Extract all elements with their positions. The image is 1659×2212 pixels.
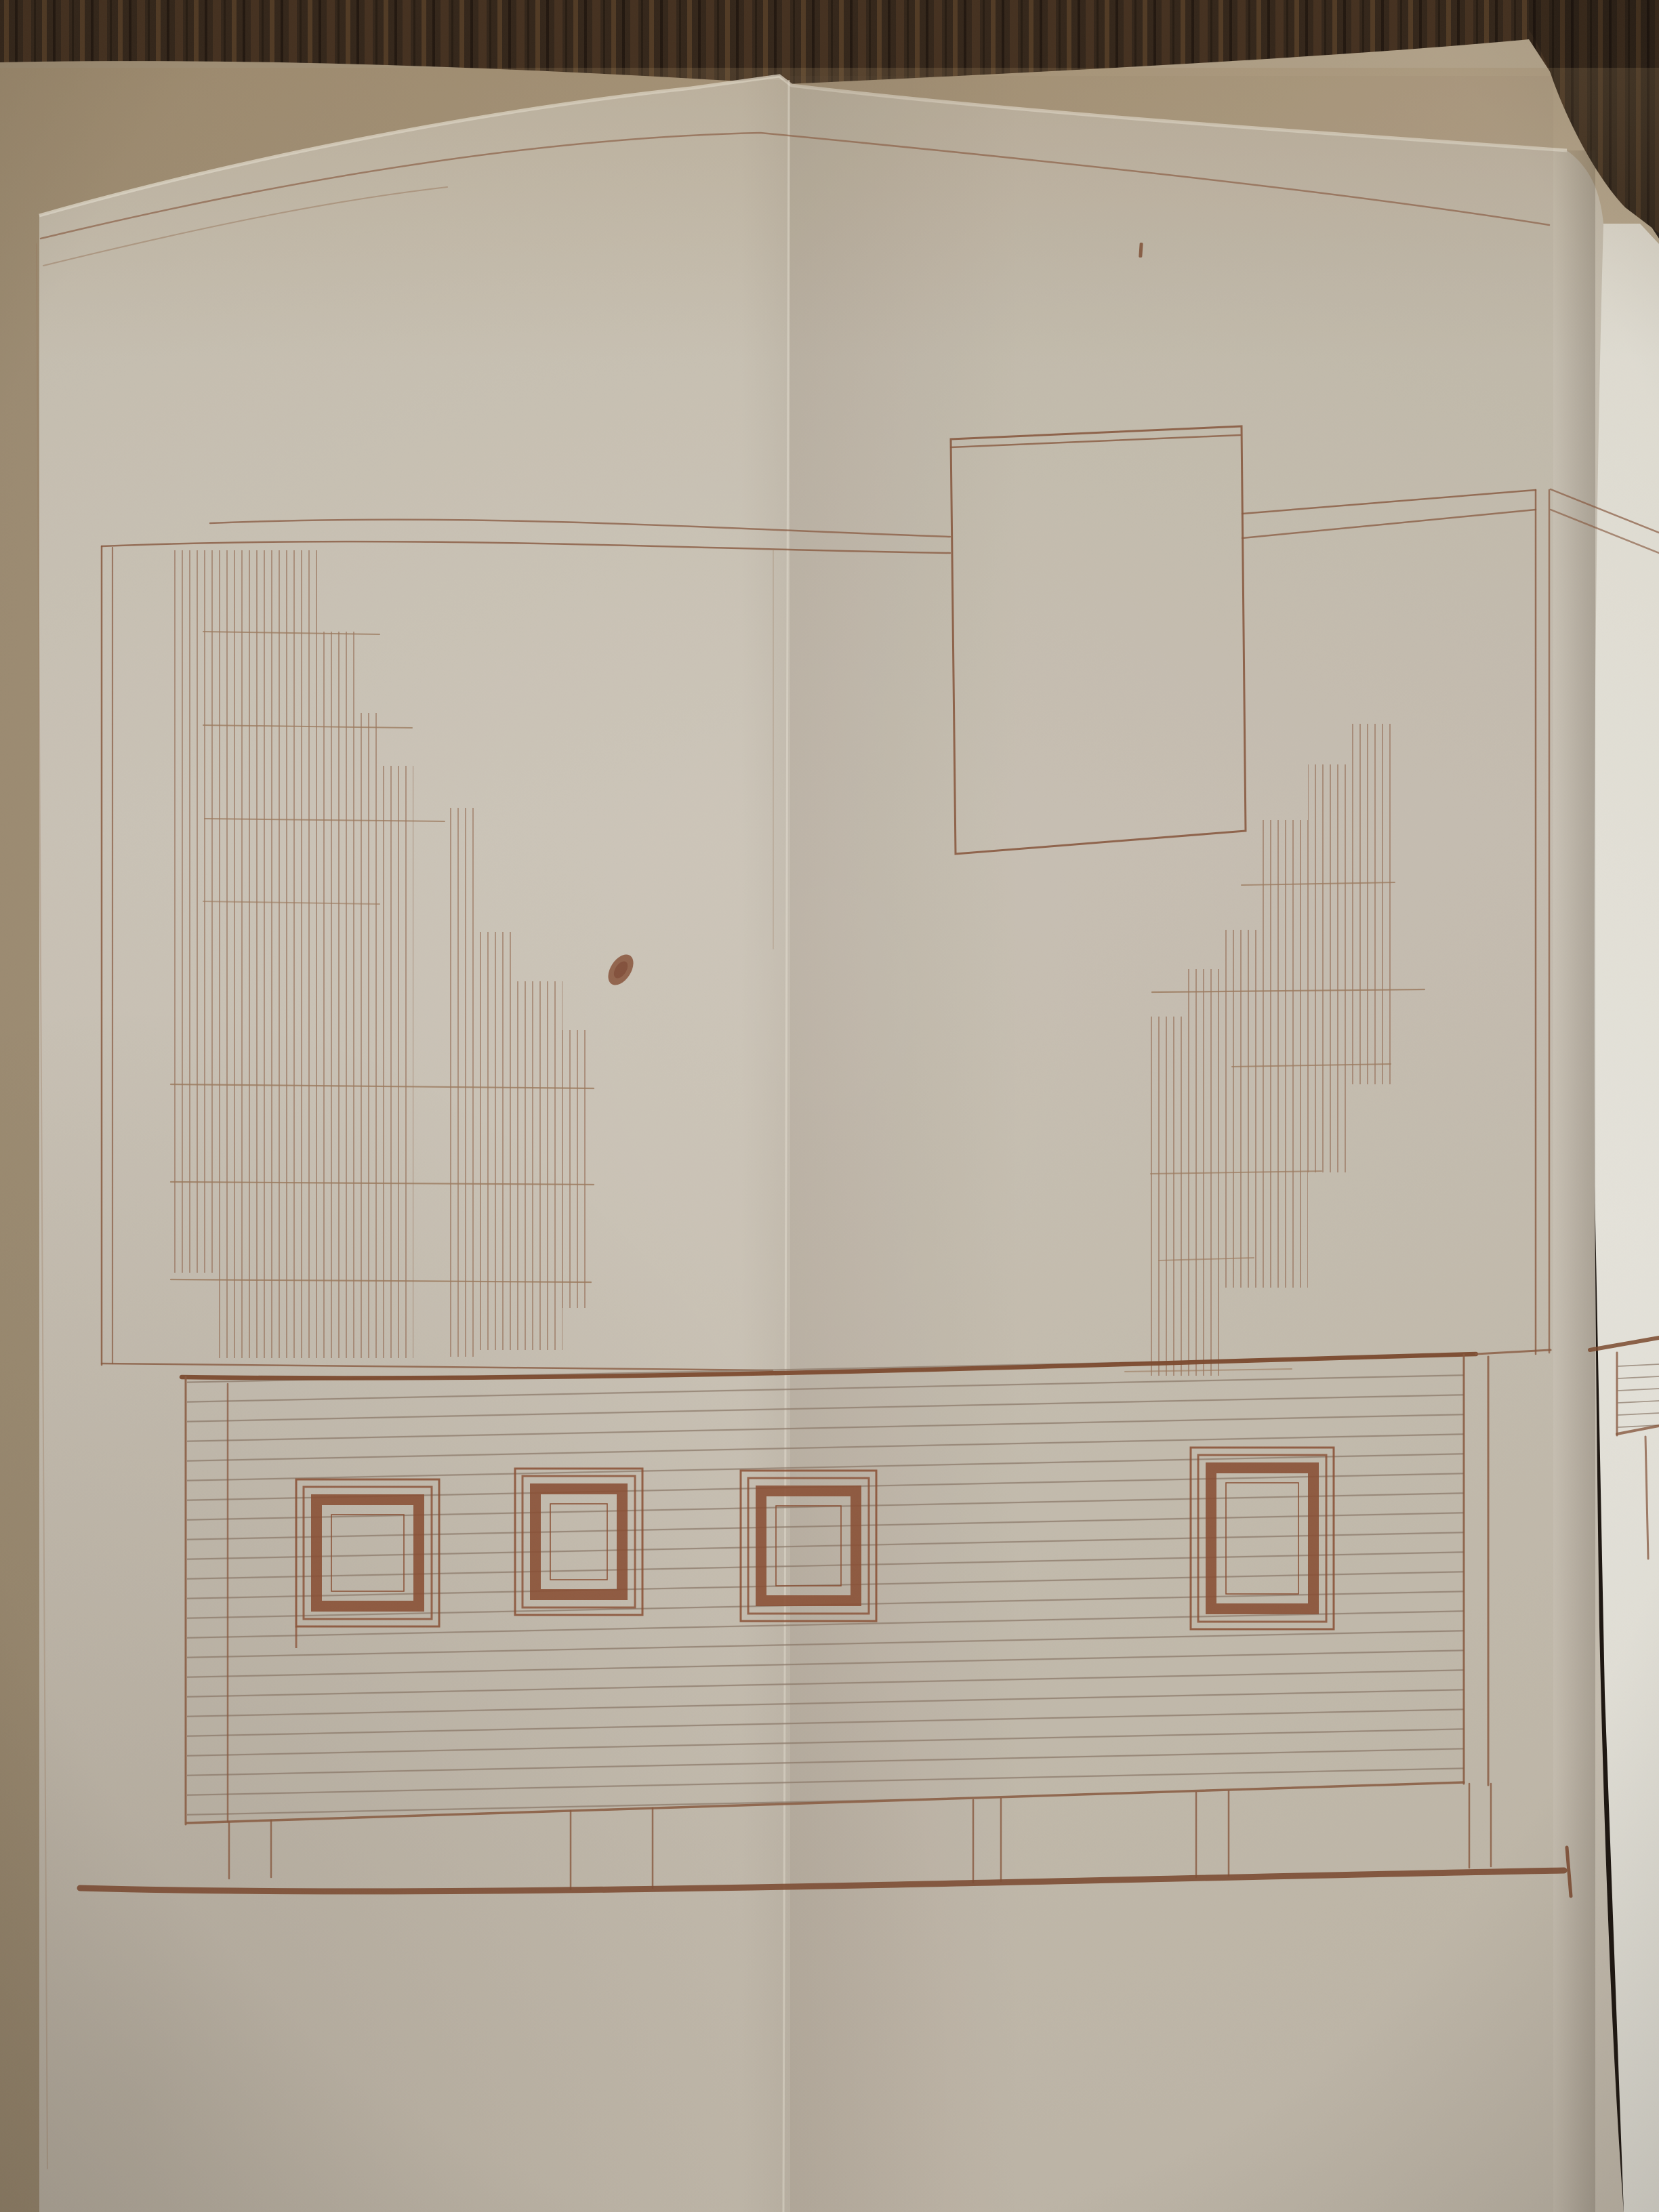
vignette <box>0 0 1659 2212</box>
drawing-photo-canvas <box>0 0 1659 2212</box>
photo-of-architectural-drawing <box>0 0 1659 2212</box>
